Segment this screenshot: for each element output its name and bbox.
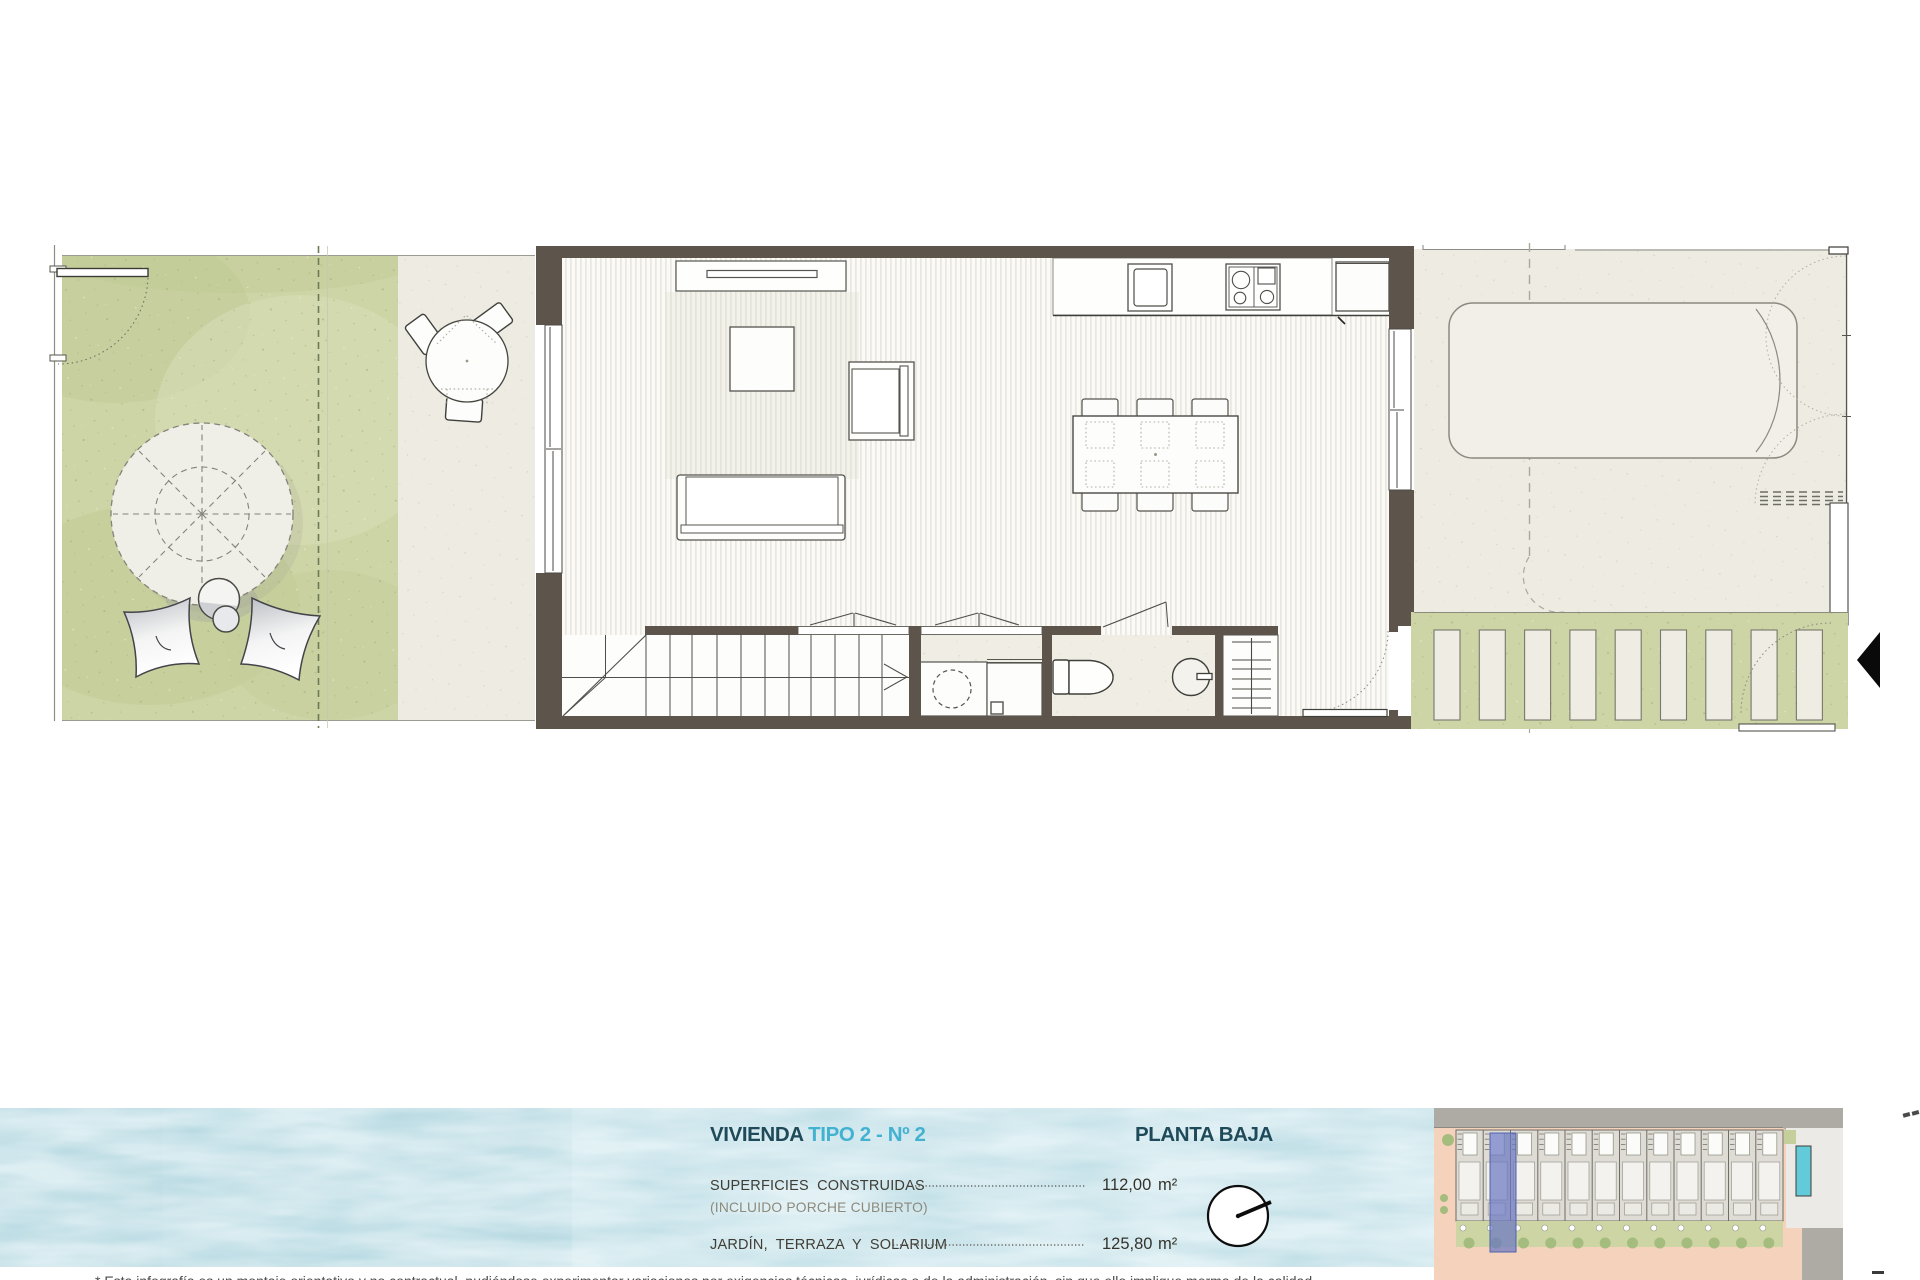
svg-text:125,80: 125,80 bbox=[1102, 1235, 1152, 1253]
svg-text:SUPERFICIES CONSTRUIDAS: SUPERFICIES CONSTRUIDAS bbox=[710, 1178, 925, 1194]
svg-text:PLANTA BAJA: PLANTA BAJA bbox=[1135, 1123, 1274, 1146]
svg-text:* Esta infografía es un montaj: * Esta infografía es un montaje orientat… bbox=[95, 1273, 1316, 1280]
svg-text:112,00: 112,00 bbox=[1102, 1176, 1151, 1194]
svg-text:m²: m² bbox=[1158, 1176, 1178, 1194]
svg-text:(INCLUIDO PORCHE CUBIERTO): (INCLUIDO PORCHE CUBIERTO) bbox=[710, 1200, 928, 1215]
svg-text:VIVIENDA TIPO 2 - Nº 2: VIVIENDA TIPO 2 - Nº 2 bbox=[710, 1123, 926, 1146]
svg-text:m²: m² bbox=[1158, 1235, 1178, 1253]
